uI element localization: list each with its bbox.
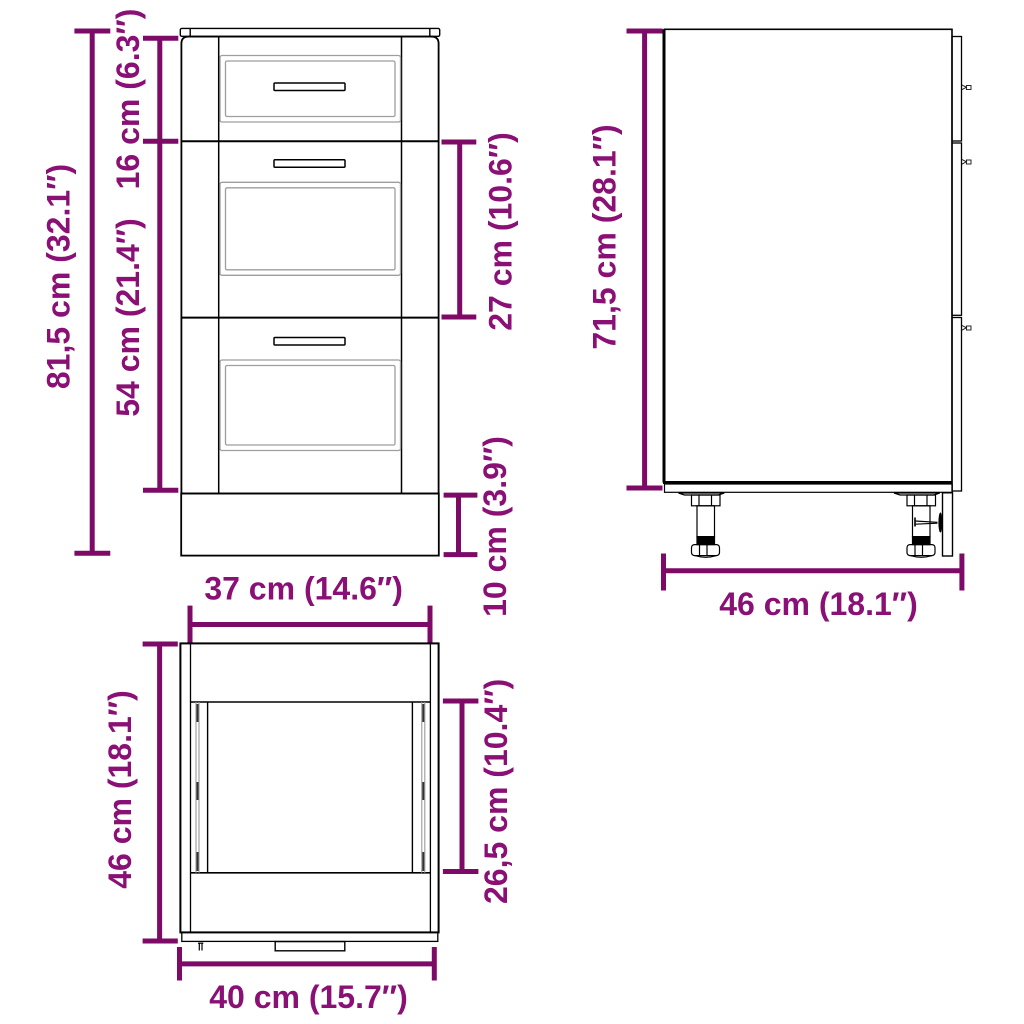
svg-text:40 cm (15.7″): 40 cm (15.7″) [209, 979, 408, 1015]
svg-text:46 cm (18.1″): 46 cm (18.1″) [102, 690, 138, 889]
svg-text:16 cm (6.3″): 16 cm (6.3″) [110, 9, 146, 190]
svg-text:81,5 cm (32.1″): 81,5 cm (32.1″) [41, 164, 77, 389]
svg-text:26,5 cm (10.4″): 26,5 cm (10.4″) [478, 679, 514, 904]
svg-text:54 cm (21.4″): 54 cm (21.4″) [110, 218, 146, 417]
svg-text:71,5 cm (28.1″): 71,5 cm (28.1″) [587, 124, 623, 349]
svg-text:46 cm (18.1″): 46 cm (18.1″) [719, 586, 918, 622]
svg-text:27 cm (10.6″): 27 cm (10.6″) [483, 132, 519, 331]
svg-text:37 cm (14.6″): 37 cm (14.6″) [204, 570, 403, 606]
svg-text:10 cm (3.9″): 10 cm (3.9″) [477, 436, 513, 617]
